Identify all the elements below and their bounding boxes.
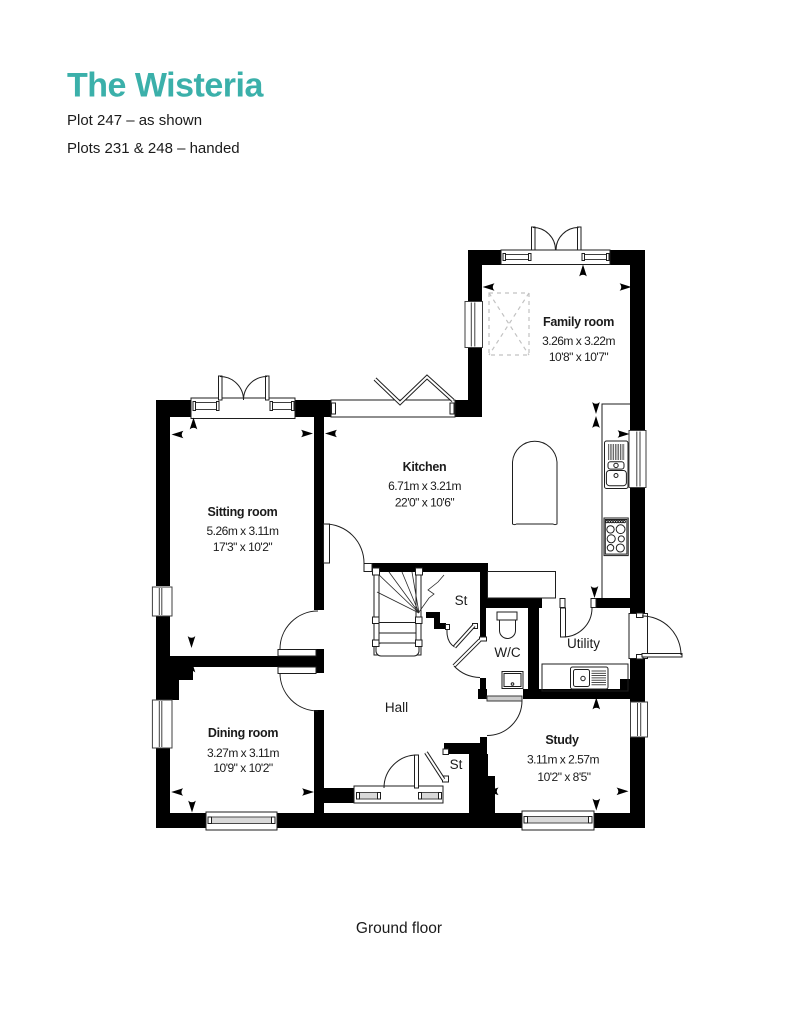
svg-text:3.11m x 2.57m: 3.11m x 2.57m — [527, 753, 599, 767]
svg-text:5.26m x 3.11m: 5.26m x 3.11m — [207, 524, 279, 538]
svg-text:10'2" x 8'5": 10'2" x 8'5" — [537, 770, 590, 784]
svg-text:22'0" x 10'6": 22'0" x 10'6" — [395, 496, 455, 510]
svg-text:Kitchen: Kitchen — [403, 460, 447, 474]
svg-text:Dining room: Dining room — [208, 726, 278, 740]
svg-text:W/C: W/C — [494, 645, 520, 660]
svg-text:Utility: Utility — [567, 636, 600, 651]
svg-text:Ground floor: Ground floor — [356, 920, 442, 937]
svg-text:10'8" x 10'7": 10'8" x 10'7" — [549, 350, 609, 364]
svg-text:St: St — [450, 757, 463, 772]
svg-text:3.27m x 3.11m: 3.27m x 3.11m — [207, 746, 279, 760]
svg-text:Sitting room: Sitting room — [207, 505, 277, 519]
svg-text:10'9" x 10'2": 10'9" x 10'2" — [213, 761, 273, 775]
svg-text:3.26m x 3.22m: 3.26m x 3.22m — [542, 334, 615, 348]
svg-text:Hall: Hall — [385, 700, 408, 715]
svg-text:6.71m x 3.21m: 6.71m x 3.21m — [388, 479, 461, 493]
svg-text:The Wisteria: The Wisteria — [67, 67, 264, 105]
svg-text:Family room: Family room — [543, 315, 614, 329]
svg-text:Plot 247 – as shown: Plot 247 – as shown — [67, 112, 202, 129]
svg-text:St: St — [455, 593, 468, 608]
svg-text:Plots 231 & 248 – handed: Plots 231 & 248 – handed — [67, 140, 240, 157]
svg-text:Study: Study — [545, 733, 579, 747]
svg-text:17'3" x 10'2": 17'3" x 10'2" — [213, 540, 273, 554]
